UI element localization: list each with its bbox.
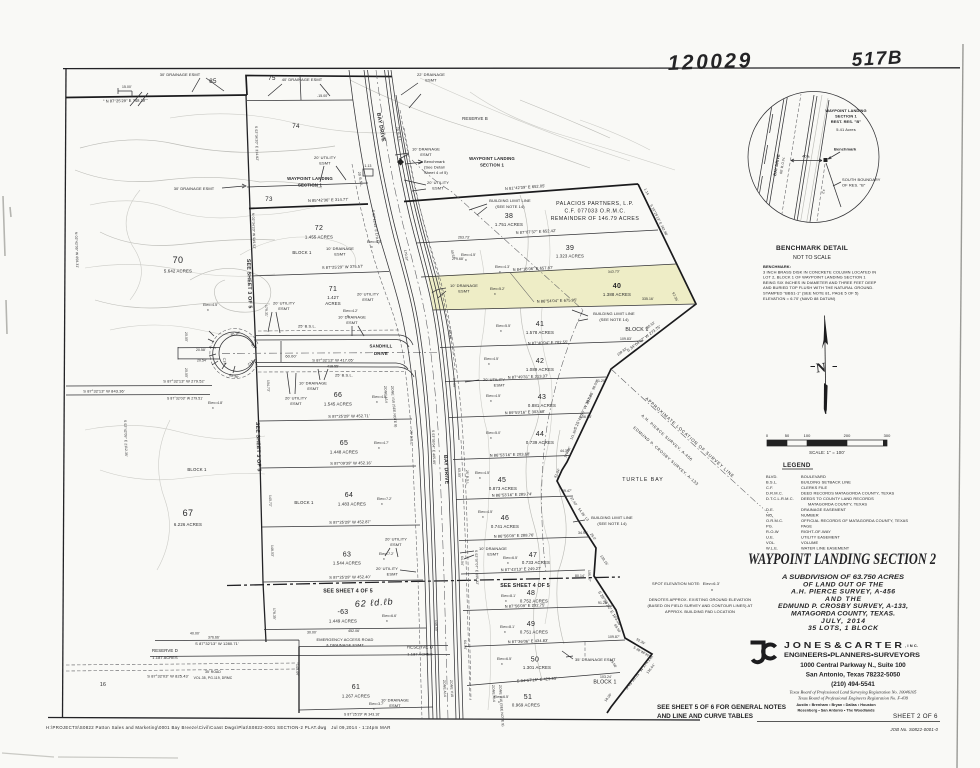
svg-text:ELEVATION = 6.70' (NAVD 88 DAT: ELEVATION = 6.70' (NAVD 88 DATUM) <box>763 296 836 301</box>
svg-text:Elev=4.5': Elev=4.5' <box>486 394 501 398</box>
svg-text:1.323 ACRES: 1.323 ACRES <box>556 254 584 259</box>
svg-text:60.00': 60.00' <box>457 468 461 478</box>
svg-text:ESMT: ESMT <box>290 401 302 406</box>
svg-text:44: 44 <box>536 431 544 438</box>
svg-text:S 87°25'29" W 452.87': S 87°25'29" W 452.87' <box>329 519 371 525</box>
svg-text:42: 42 <box>536 358 544 365</box>
svg-text:S 87°32'03" W 279.51': S 87°32'03" W 279.51' <box>167 397 203 401</box>
svg-text:40: 40 <box>613 283 621 290</box>
svg-text:ESMT: ESMT <box>278 306 290 311</box>
svg-text:38: 38 <box>505 213 513 220</box>
svg-text:10' DRAINAGE: 10' DRAINAGE <box>326 246 354 251</box>
svg-text:-15.00': -15.00' <box>317 94 328 98</box>
svg-text:10' DRAINAGE: 10' DRAINAGE <box>381 698 409 703</box>
svg-text:1.267 ACRES: 1.267 ACRES <box>342 694 370 699</box>
svg-text:10' DRAINAGE: 10' DRAINAGE <box>299 381 327 386</box>
svg-text:(SEE NOTE 14): (SEE NOTE 14) <box>495 204 525 209</box>
svg-text:CLERKS FILE: CLERKS FILE <box>801 485 828 490</box>
svg-text:(SEE NOTE 14): (SEE NOTE 14) <box>597 521 627 526</box>
svg-text:40' DRAINAGE ESMT: 40' DRAINAGE ESMT <box>282 77 323 82</box>
svg-text:105.67': 105.67' <box>587 570 591 582</box>
svg-text:Elev=6.5': Elev=6.5' <box>494 695 509 699</box>
svg-text:Elev=6.5': Elev=6.5' <box>497 657 512 661</box>
svg-text:x: x <box>373 707 375 711</box>
svg-text:Elev=4.5': Elev=4.5' <box>461 253 476 257</box>
svg-text:x: x <box>498 700 500 704</box>
svg-text:DRAINAGE EASEMENT: DRAINAGE EASEMENT <box>801 507 847 512</box>
svg-text:64.04': 64.04' <box>463 640 467 650</box>
svg-text:S 87°32'13" W 1280.71': S 87°32'13" W 1280.71' <box>195 641 239 646</box>
svg-text:Elev=8.1': Elev=8.1' <box>500 625 515 629</box>
svg-text:15.00': 15.00' <box>122 85 132 89</box>
svg-text:ESMT: ESMT <box>346 320 358 325</box>
svg-text:, I N C.: , I N C. <box>905 643 918 648</box>
svg-text:BLOCK 1: BLOCK 1 <box>625 327 648 333</box>
svg-text:59.47': 59.47' <box>562 489 572 493</box>
svg-text:0.741 ACRES: 0.741 ACRES <box>491 524 519 529</box>
svg-text:Austin • Brenham • Bryan • Dal: Austin • Brenham • Bryan • Dallas • Hous… <box>796 703 876 707</box>
svg-text:50: 50 <box>531 657 539 664</box>
svg-text:x: x <box>207 308 209 312</box>
svg-text:10' DRAINAGE: 10' DRAINAGE <box>479 546 507 551</box>
svg-text:44.35': 44.35' <box>560 449 570 453</box>
svg-text:ESMT: ESMT <box>425 78 437 83</box>
svg-text:x: x <box>479 476 481 480</box>
svg-text:5.41 Acres: 5.41 Acres <box>836 127 856 132</box>
svg-text:x: x <box>488 362 490 366</box>
svg-text:BUILDING LIMIT LINE: BUILDING LIMIT LINE <box>591 515 633 520</box>
svg-text:1.751 ACRES: 1.751 ACRES <box>495 222 523 227</box>
svg-text:75: 75 <box>268 75 276 82</box>
svg-text:UTILITY EASEMENT: UTILITY EASEMENT <box>801 535 840 540</box>
svg-text:BUILDING SETBACK LINE: BUILDING SETBACK LINE <box>801 480 851 485</box>
svg-text:BUILDING LIMIT LINE: BUILDING LIMIT LINE <box>489 198 531 203</box>
svg-text:LOT 2, BLOCK 1 OF WAYPOINT LAN: LOT 2, BLOCK 1 OF WAYPOINT LANDING SECTI… <box>763 275 866 280</box>
svg-text:S 87°32'13" W 843.36': S 87°32'13" W 843.36' <box>83 389 125 394</box>
svg-text:ESMT: ESMT <box>432 186 444 191</box>
svg-text:47: 47 <box>529 552 537 559</box>
svg-text:S 87°32'13" W 279.52': S 87°32'13" W 279.52' <box>163 379 205 384</box>
svg-text:25' B.S.L.: 25' B.S.L. <box>335 373 353 378</box>
svg-text:Elev=5.2': Elev=5.2' <box>490 287 505 291</box>
svg-text:30.00': 30.00' <box>307 631 317 635</box>
svg-text:DENOTES APPROX. EXISTING GROUN: DENOTES APPROX. EXISTING GROUND ELEVATIO… <box>649 597 751 602</box>
svg-text:418.55': 418.55' <box>327 365 339 369</box>
svg-text:45: 45 <box>498 477 506 484</box>
svg-text:VOL.35, PG.119, DRMC: VOL.35, PG.119, DRMC <box>194 676 233 680</box>
svg-text:20' UTILITY: 20' UTILITY <box>385 537 407 542</box>
svg-text:1.427: 1.427 <box>327 295 339 300</box>
svg-text:(SEE NOTE 14): (SEE NOTE 14) <box>599 317 629 322</box>
svg-text:x: x <box>381 502 383 506</box>
svg-text:Elev=4.7': Elev=4.7' <box>374 441 389 445</box>
svg-text:-63: -63 <box>337 609 348 616</box>
svg-text:61: 61 <box>352 684 360 691</box>
svg-text:0.751 ACRES: 0.751 ACRES <box>520 630 548 635</box>
svg-text:Elev=8.1': Elev=8.1' <box>501 594 516 598</box>
svg-text:71: 71 <box>329 286 337 293</box>
svg-text:100: 100 <box>804 433 812 438</box>
svg-text:140.72': 140.72' <box>268 495 272 507</box>
svg-text:JOB No. S0822-0001-0: JOB No. S0822-0001-0 <box>889 727 938 732</box>
svg-text:74: 74 <box>292 123 300 130</box>
svg-text:72: 72 <box>315 225 323 232</box>
svg-text:SANDHILL: SANDHILL <box>370 344 393 349</box>
svg-text:1.301 ACRES: 1.301 ACRES <box>523 665 551 670</box>
svg-text:x: x <box>499 270 501 274</box>
svg-text:JULY, 2014: JULY, 2014 <box>821 618 865 625</box>
svg-text:120029: 120029 <box>667 49 753 75</box>
svg-text:BOULEVARD: BOULEVARD <box>801 474 826 479</box>
svg-text:1.448 ACRES: 1.448 ACRES <box>330 450 358 455</box>
svg-text:300: 300 <box>884 433 892 438</box>
svg-text:RESERVE D: RESERVE D <box>152 648 178 653</box>
svg-text:San Antonio, Texas 78232-5050: San Antonio, Texas 78232-5050 <box>806 672 901 679</box>
svg-text:179.31': 179.31' <box>264 305 268 317</box>
svg-text:20' UTILITY: 20' UTILITY <box>273 301 295 306</box>
svg-text:376.66': 376.66' <box>208 636 220 640</box>
svg-text:x: x <box>494 292 496 296</box>
svg-text:H:\PROJECTS\S0822 Patton Sales: H:\PROJECTS\S0822 Patton Sales and Marke… <box>46 725 391 730</box>
svg-text:Texas Board of Professional La: Texas Board of Professional Land Surveyi… <box>790 690 918 695</box>
svg-text:BLVD.: BLVD. <box>766 474 778 479</box>
svg-text:50: 50 <box>785 433 790 438</box>
svg-text:1.455 ACRES: 1.455 ACRES <box>305 235 333 240</box>
svg-text:x: x <box>386 619 388 623</box>
svg-text:20' UTILITY: 20' UTILITY <box>314 155 336 160</box>
svg-text:20' UTILITY: 20' UTILITY <box>285 396 307 401</box>
svg-text:ESMT: ESMT <box>362 297 374 302</box>
svg-text:ESMT: ESMT <box>487 552 499 557</box>
svg-text:51: 51 <box>524 694 532 701</box>
svg-text:148.55': 148.55' <box>434 620 438 632</box>
svg-text:Elev=4.5': Elev=4.5' <box>475 471 490 475</box>
svg-text:20.00': 20.00' <box>184 332 188 342</box>
svg-text:x: x <box>212 406 214 410</box>
svg-text:WAYPOINT LANDING: WAYPOINT LANDING <box>287 176 333 181</box>
svg-text:x: x <box>500 329 502 333</box>
svg-text:Benchmark: Benchmark <box>424 159 445 164</box>
svg-text:S 87°32'13" W 417.05': S 87°32'13" W 417.05' <box>312 358 354 363</box>
svg-text:16: 16 <box>100 682 106 688</box>
svg-text:1.13: 1.13 <box>365 164 372 168</box>
svg-text:1.578 ACRES: 1.578 ACRES <box>526 330 554 335</box>
svg-text:NUMBER: NUMBER <box>801 513 819 518</box>
svg-text:Elev=6.5': Elev=6.5' <box>503 556 518 560</box>
svg-text:VOLUME: VOLUME <box>801 540 819 545</box>
svg-text:x: x <box>376 400 378 404</box>
svg-text:STAMPED "BBS1-1" (SEE NOTE 81,: STAMPED "BBS1-1" (SEE NOTE 81, PAGE 5 OF… <box>763 291 859 296</box>
svg-text:x: x <box>371 245 373 249</box>
svg-text:(210) 494-5541: (210) 494-5541 <box>831 681 875 688</box>
svg-text:5.642 ACRES: 5.642 ACRES <box>164 269 192 274</box>
svg-text:0.881 ACRES: 0.881 ACRES <box>528 403 556 408</box>
svg-text:x: x <box>490 436 492 440</box>
svg-text:65: 65 <box>340 440 348 447</box>
svg-text:64: 64 <box>345 492 353 499</box>
svg-text:S 87°32'03" W 825.43': S 87°32'03" W 825.43' <box>147 674 189 679</box>
svg-text:25' B.S.L.: 25' B.S.L. <box>465 470 470 486</box>
svg-text:35 LOTS, 1 BLOCK: 35 LOTS, 1 BLOCK <box>808 625 879 632</box>
svg-text:63: 63 <box>343 552 351 559</box>
svg-text:64.00': 64.00' <box>452 378 456 388</box>
svg-text:SOUTH BOUNDARY: SOUTH BOUNDARY <box>842 177 881 182</box>
svg-text:x: x <box>501 662 503 666</box>
svg-text:263.73': 263.73' <box>458 236 470 240</box>
svg-text:W.L.E.: W.L.E. <box>766 546 778 551</box>
svg-text:x: x <box>507 561 509 565</box>
svg-text:35' ROAD: 35' ROAD <box>205 670 221 674</box>
svg-text:Elev=5.5': Elev=5.5' <box>496 324 511 328</box>
svg-text:R-O-W: R-O-W <box>766 529 779 534</box>
svg-text:0.739 ACRES: 0.739 ACRES <box>526 440 554 445</box>
svg-text:MATAGORDA COUNTY, TEXAS.: MATAGORDA COUNTY, TEXAS. <box>791 611 895 618</box>
svg-text:SEE SHEET 4 OF 5: SEE SHEET 4 OF 5 <box>500 583 550 589</box>
svg-text:279.68': 279.68' <box>452 257 464 261</box>
svg-text:517B: 517B <box>851 47 903 71</box>
svg-text:22' DRAINAGE: 22' DRAINAGE <box>417 72 445 77</box>
svg-text:20.58': 20.58' <box>196 348 206 352</box>
svg-text:VOL.: VOL. <box>766 540 775 545</box>
svg-text:Elev=3.7': Elev=3.7' <box>369 702 384 706</box>
svg-text:SECTION 1: SECTION 1 <box>835 114 857 119</box>
svg-text:BENCHMARK DETAIL: BENCHMARK DETAIL <box>776 245 848 252</box>
svg-text:25' B.S.L.: 25' B.S.L. <box>409 430 414 446</box>
svg-text:70: 70 <box>173 255 184 265</box>
svg-text:AND LINE AND CURVE TABLES: AND LINE AND CURVE TABLES <box>657 713 754 720</box>
svg-text:Elev=6.6': Elev=6.6' <box>382 614 397 618</box>
svg-text:0.873 ACRES: 0.873 ACRES <box>489 486 517 491</box>
svg-text:x: x <box>465 258 467 262</box>
svg-text:ESMT: ESMT <box>420 152 432 157</box>
svg-text:ESMT: ESMT <box>389 703 401 708</box>
svg-text:U.E.: U.E. <box>766 535 774 540</box>
svg-text:ESMT: ESMT <box>319 161 331 166</box>
svg-text:34.91': 34.91' <box>578 531 588 535</box>
svg-text:ESMT: ESMT <box>307 386 319 391</box>
svg-text:20' UTILITY: 20' UTILITY <box>376 566 398 571</box>
svg-text:Rosenberg • San Antonio • The: Rosenberg • San Antonio • The Woodlands <box>797 709 874 713</box>
svg-text:1000 Central Parkway N., Suite: 1000 Central Parkway N., Suite 100 <box>800 662 906 669</box>
svg-text:143.44': 143.44' <box>295 664 299 676</box>
svg-text:40'±: 40'± <box>802 154 810 159</box>
svg-text:N: N <box>815 360 827 376</box>
svg-text:x: x <box>378 446 380 450</box>
svg-text:43: 43 <box>538 394 546 401</box>
svg-text:OFFICIAL RECORDS OF MATAGORDA: OFFICIAL RECORDS OF MATAGORDA COUNTY, TE… <box>801 518 908 523</box>
svg-text:SEE SHEET 4 OF 5: SEE SHEET 4 OF 5 <box>323 589 373 595</box>
svg-text:S 87°25'29" W 452.40': S 87°25'29" W 452.40' <box>329 574 371 580</box>
svg-text:WAYPOINT LANDING: WAYPOINT LANDING <box>469 156 515 161</box>
svg-text:WAYPOINT LANDING SECTION 2: WAYPOINT LANDING SECTION 2 <box>748 551 936 568</box>
svg-text:6.226 ACRES: 6.226 ACRES <box>174 522 202 527</box>
svg-text:D.T.C.L.R.M.C.: D.T.C.L.R.M.C. <box>766 496 794 501</box>
svg-text:Benchmark: Benchmark <box>834 147 857 152</box>
svg-text:(See Detail: (See Detail <box>424 165 445 170</box>
svg-text:1.483 ACRES: 1.483 ACRES <box>338 502 366 507</box>
svg-text:D.R.M.C.: D.R.M.C. <box>766 491 783 496</box>
svg-text:10' DRAINAGE: 10' DRAINAGE <box>450 283 478 288</box>
svg-text:64.04': 64.04' <box>448 330 453 340</box>
svg-text:OF RES. "B": OF RES. "B" <box>842 183 866 188</box>
svg-text:SECTION 1: SECTION 1 <box>298 183 322 188</box>
svg-text:BENCHMARK:: BENCHMARK: <box>763 264 791 269</box>
svg-text:RIGHT-OF-WAY: RIGHT-OF-WAY <box>801 529 831 534</box>
svg-text:20' UTILITY: 20' UTILITY <box>357 292 379 297</box>
svg-text:10' DRAINAGE: 10' DRAINAGE <box>412 147 440 152</box>
svg-text:335.16': 335.16' <box>642 297 654 301</box>
svg-text:x: x <box>383 557 385 561</box>
svg-text:ESMT: ESMT <box>390 542 402 547</box>
svg-text:S 87°25'29" W 452.71': S 87°25'29" W 452.71' <box>328 413 370 419</box>
svg-text:20.54': 20.54' <box>197 359 207 363</box>
svg-text:103.24': 103.24' <box>600 675 612 679</box>
svg-text:PALACIOS PARTNERS, L.P.: PALACIOS PARTNERS, L.P. <box>556 201 634 207</box>
svg-text:452.06': 452.06' <box>348 629 360 633</box>
svg-text:1.388 ACRES: 1.388 ACRES <box>603 292 631 297</box>
svg-text:NOT TO SCALE: NOT TO SCALE <box>793 255 832 261</box>
svg-text:20.00': 20.00' <box>184 368 188 378</box>
svg-text:91.25': 91.25' <box>598 601 608 605</box>
svg-text:C.F.: C.F. <box>766 485 773 490</box>
svg-text:0.969 ACRES: 0.969 ACRES <box>512 703 540 708</box>
svg-text:LEGEND: LEGEND <box>783 462 811 469</box>
svg-text:EDMUND P. CROSBY SURVEY, A-133: EDMUND P. CROSBY SURVEY, A-133, <box>778 603 908 610</box>
svg-text:Elev=5.0': Elev=5.0' <box>486 431 501 435</box>
svg-text:Texas Board of Professional En: Texas Board of Professional Engineers Re… <box>798 696 909 701</box>
svg-text:B.S.L.: B.S.L. <box>766 480 777 485</box>
svg-text:35' DRAINAGE ESMT: 35' DRAINAGE ESMT <box>575 657 616 662</box>
svg-text:109.83': 109.83' <box>620 337 632 341</box>
svg-text:x: x <box>505 599 507 603</box>
svg-text:EMERGENCY ACCESS ROAD: EMERGENCY ACCESS ROAD <box>317 637 374 642</box>
svg-text:66: 66 <box>334 392 342 399</box>
svg-text:OF LAND OUT OF THE: OF LAND OUT OF THE <box>803 581 883 588</box>
svg-text:REMAINDER OF 146.79 ACRES: REMAINDER OF 146.79 ACRES <box>551 216 640 222</box>
svg-text:BLOCK 1: BLOCK 1 <box>187 467 207 472</box>
svg-text:80.14': 80.14' <box>575 574 585 578</box>
svg-text:Elev=4.5': Elev=4.5' <box>484 357 499 361</box>
svg-text:Elev=7.2': Elev=7.2' <box>377 497 392 501</box>
svg-text:200: 200 <box>844 433 852 438</box>
svg-text:TURTLE BAY: TURTLE BAY <box>622 477 664 483</box>
svg-text:64.04': 64.04' <box>460 556 464 566</box>
svg-text:60.00': 60.00' <box>285 354 296 359</box>
svg-text:A SUBDIVISION OF 63.750 ACRES: A SUBDIVISION OF 63.750 ACRES <box>781 574 905 581</box>
svg-text:S 87°25'29" W 343.16': S 87°25'29" W 343.16' <box>344 713 380 717</box>
svg-text:DEEDS TO COUNTY LAND RECORDS: DEEDS TO COUNTY LAND RECORDS <box>801 496 874 501</box>
svg-text:148.03': 148.03' <box>270 545 274 557</box>
svg-text:49: 49 <box>527 621 535 628</box>
svg-text:ENGINEERS•PLANNERS•SURVEYORS: ENGINEERS•PLANNERS•SURVEYORS <box>784 653 920 659</box>
svg-text:ESMT: ESMT <box>458 289 470 294</box>
svg-text:SHEET 2 OF 6: SHEET 2 OF 6 <box>893 713 938 720</box>
svg-text:O.R.M.C.: O.R.M.C. <box>766 518 783 523</box>
svg-text:BLOCK 1: BLOCK 1 <box>593 680 616 686</box>
svg-text:10' DRAINAGE: 10' DRAINAGE <box>338 315 366 320</box>
svg-text:Elev=7.2': Elev=7.2' <box>379 552 394 556</box>
svg-text:46: 46 <box>501 515 509 522</box>
svg-text:BUILDING LIMIT LINE: BUILDING LIMIT LINE <box>593 311 635 316</box>
svg-text:BLOCK 1: BLOCK 1 <box>294 500 314 505</box>
svg-text:SEE SHEET 5 OF 6 FOR GENERAL N: SEE SHEET 5 OF 6 FOR GENERAL NOTES <box>657 704 787 711</box>
svg-text:x: x <box>490 399 492 403</box>
svg-text:ACRES: ACRES <box>325 301 341 306</box>
svg-text:DRIVE: DRIVE <box>374 351 388 356</box>
svg-text:SCALE: 1" = 100': SCALE: 1" = 100' <box>809 450 845 455</box>
svg-text:AND THE: AND THE <box>824 596 861 603</box>
svg-text:39: 39 <box>566 245 574 252</box>
svg-text:WAYPOINT LANDING: WAYPOINT LANDING <box>825 108 866 113</box>
svg-text:D.E.: D.E. <box>766 507 774 512</box>
svg-text:J O N E S & C A R T E R: J O N E S & C A R T E R <box>784 640 902 650</box>
svg-text:106.93': 106.93' <box>580 415 592 419</box>
svg-text:343.73': 343.73' <box>608 269 620 274</box>
svg-text:PG.: PG. <box>766 524 773 529</box>
svg-text:73: 73 <box>265 196 273 203</box>
svg-text:109.87': 109.87' <box>608 635 620 639</box>
svg-text:& DRAINAGE ESMT: & DRAINAGE ESMT <box>326 643 364 648</box>
svg-text:1.544 ACRES: 1.544 ACRES <box>333 561 361 566</box>
svg-text:MATAGORDA COUNTY, TEXAS: MATAGORDA COUNTY, TEXAS <box>808 502 867 507</box>
svg-text:C.F. 077033 O.R.M.C.: C.F. 077033 O.R.M.C. <box>564 209 625 215</box>
svg-text:1.187 ACRES: 1.187 ACRES <box>152 655 178 660</box>
svg-text:Sheet 4 of 5): Sheet 4 of 5) <box>424 170 448 175</box>
svg-text:x: x <box>482 515 484 519</box>
svg-text:Elev=4.2': Elev=4.2' <box>343 309 358 313</box>
svg-text:WATER LINE EASEMENT: WATER LINE EASEMENT <box>801 546 850 551</box>
svg-text:x: x <box>504 630 506 634</box>
svg-text:SPOT ELEVATION NOTE: Elev=6.3: SPOT ELEVATION NOTE: Elev=6.3' <box>652 581 720 586</box>
svg-text:41: 41 <box>536 321 544 328</box>
svg-text:91.20': 91.20' <box>596 379 606 383</box>
svg-text:ESMT: ESMT <box>387 572 399 577</box>
svg-text:30' DRAINAGE ESMT: 30' DRAINAGE ESMT <box>174 186 215 191</box>
svg-text:48: 48 <box>527 590 535 597</box>
svg-text:Elev=4.8': Elev=4.8' <box>208 401 223 405</box>
svg-text:SECTION 1: SECTION 1 <box>480 163 504 168</box>
svg-text:BLOCK 1: BLOCK 1 <box>292 250 312 255</box>
svg-text:1.545 ACRES: 1.545 ACRES <box>324 402 352 407</box>
svg-text:178.35': 178.35' <box>272 608 276 620</box>
svg-text:ESMT: ESMT <box>334 252 346 257</box>
svg-text:S 87°09'39" W 452.16': S 87°09'39" W 452.16' <box>330 460 372 466</box>
svg-text:A.H. PIERCE SURVEY, A-456: A.H. PIERCE SURVEY, A-456 <box>790 589 895 596</box>
svg-text:DEED RECORDS MATAGORDA COUNTY,: DEED RECORDS MATAGORDA COUNTY, TEXAS <box>801 491 894 496</box>
svg-text:20' UTILITY: 20' UTILITY <box>483 377 505 382</box>
svg-text:BEING SIX INCHES IN DIAMETER A: BEING SIX INCHES IN DIAMETER AND THREE F… <box>763 280 877 285</box>
svg-text:APPROX. BUILDING PAD LOCATION: APPROX. BUILDING PAD LOCATION <box>665 609 735 614</box>
svg-text:40.00': 40.00' <box>190 632 200 636</box>
svg-text:Elev=4.5': Elev=4.5' <box>203 303 218 307</box>
svg-text:ESMT: ESMT <box>494 383 506 388</box>
svg-text:(BASED ON FIELD SURVEY AND CON: (BASED ON FIELD SURVEY AND CONTOUR LINES… <box>648 603 753 608</box>
svg-text:AND BURIED TOP FLUSH WITH THE: AND BURIED TOP FLUSH WITH THE NATURAL GR… <box>763 285 874 290</box>
svg-text:3 INCH BRASS DISK IN CONCRETE: 3 INCH BRASS DISK IN CONCRETE COLUMN LOC… <box>763 269 876 274</box>
svg-text:x: x <box>711 587 713 592</box>
svg-text:0.733 ACRES: 0.733 ACRES <box>522 560 550 565</box>
svg-text:1.449 ACRES: 1.449 ACRES <box>329 619 357 624</box>
svg-text:104.73': 104.73' <box>266 380 270 392</box>
svg-text:1.089 ACRES: 1.089 ACRES <box>526 367 554 372</box>
svg-text:PAGE: PAGE <box>801 524 812 529</box>
svg-text:67: 67 <box>183 508 194 518</box>
svg-text:" N 87°25'29" E 748.18'": " N 87°25'29" E 748.18'" <box>103 98 148 104</box>
svg-text:REST. RES. "B": REST. RES. "B" <box>831 119 862 124</box>
svg-text:30' DRAINAGE ESMT: 30' DRAINAGE ESMT <box>160 72 201 77</box>
svg-text:RESERVE B: RESERVE B <box>462 116 488 121</box>
svg-text:Elev=4.5': Elev=4.5' <box>478 510 493 514</box>
